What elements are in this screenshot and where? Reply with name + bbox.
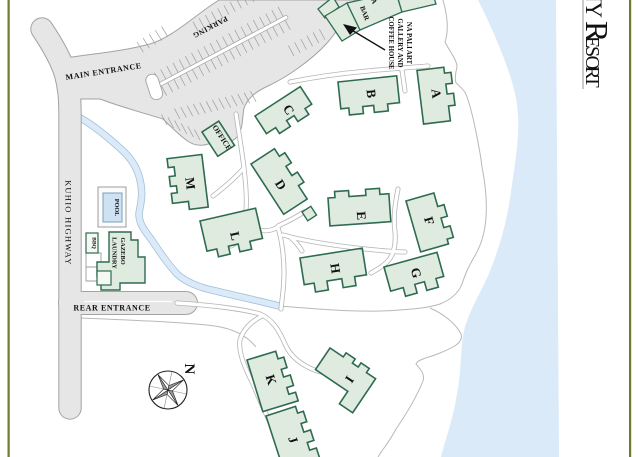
svg-text:REAR ENTRANCE: REAR ENTRANCE [73, 304, 150, 313]
svg-text:KUHIO HIGHWAY: KUHIO HIGHWAY [64, 180, 74, 266]
svg-text:E: E [354, 211, 370, 221]
svg-text:M: M [182, 176, 198, 190]
svg-text:BBQ: BBQ [91, 237, 97, 249]
svg-text:Y: Y [581, 2, 606, 19]
svg-text:POOL: POOL [113, 199, 120, 217]
svg-text:GAZEBO: GAZEBO [119, 237, 126, 264]
svg-text:LAUNDRY: LAUNDRY [111, 237, 118, 269]
svg-text:GALLERY AND: GALLERY AND [396, 18, 403, 67]
svg-text:COFFEE HOUSE: COFFEE HOUSE [387, 16, 394, 70]
svg-text:N: N [181, 364, 197, 375]
svg-text:NA PALI ART: NA PALI ART [405, 22, 412, 65]
svg-text:T: T [581, 76, 603, 88]
